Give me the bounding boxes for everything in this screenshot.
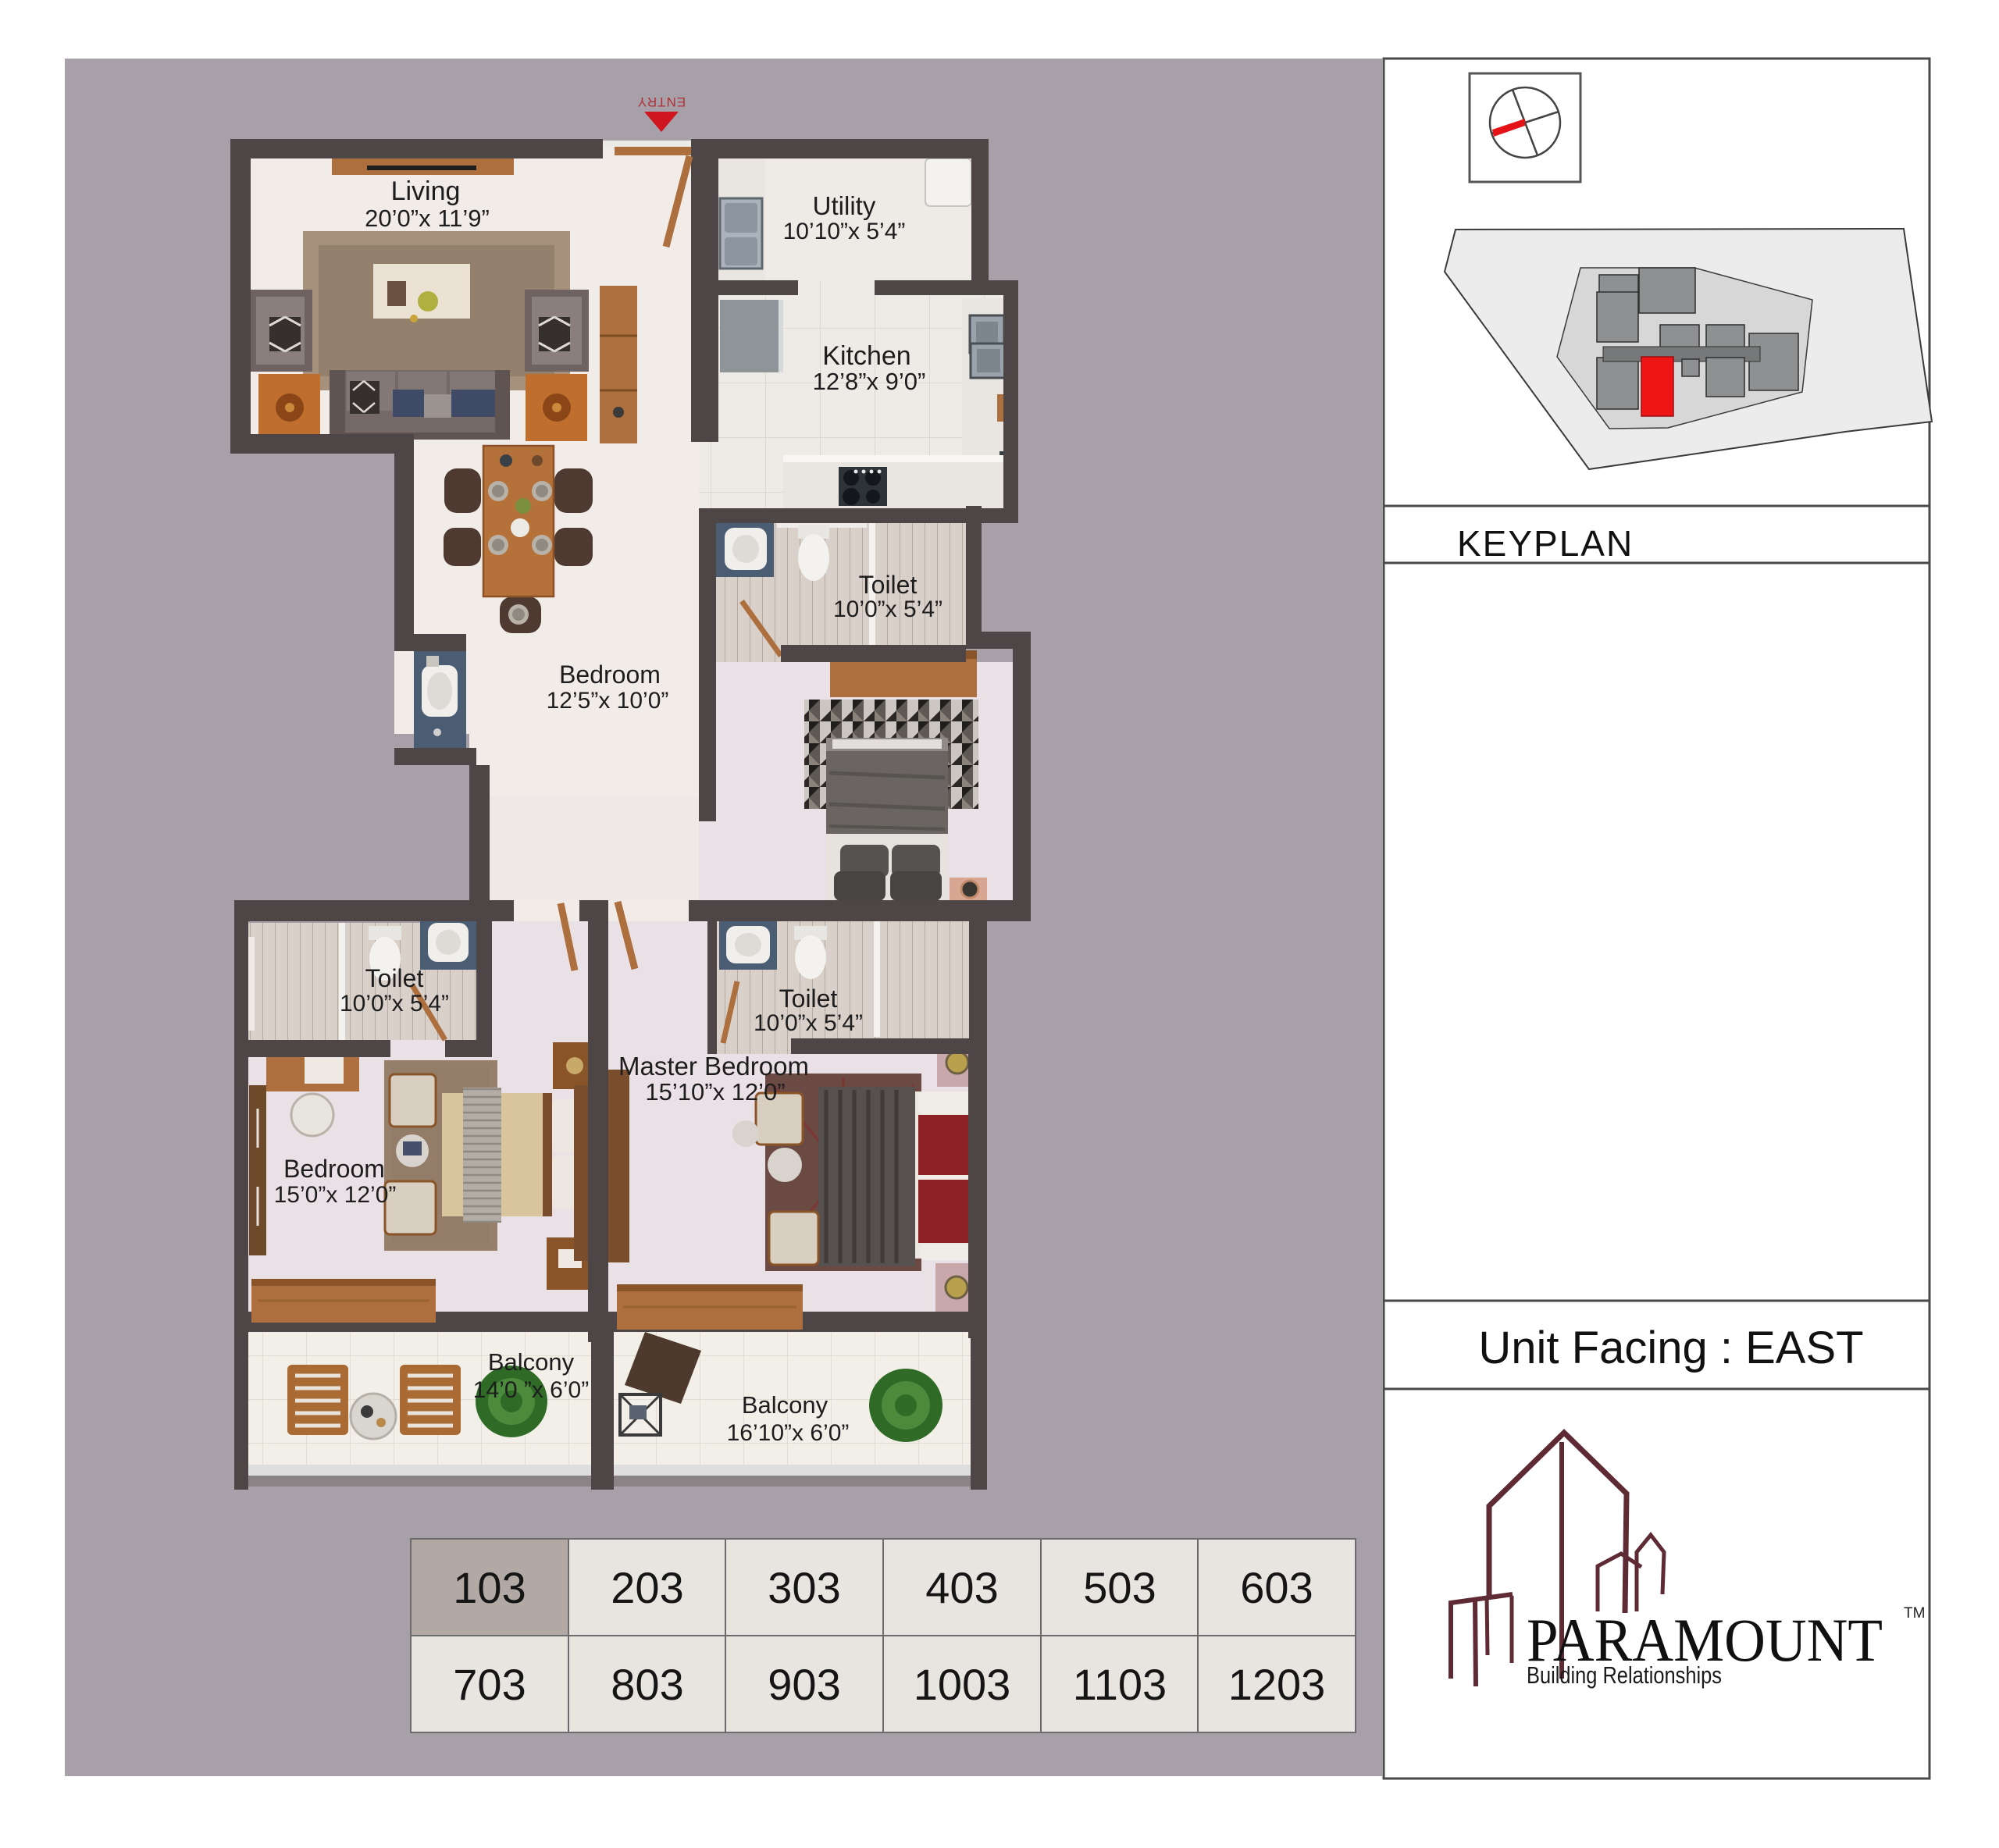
svg-text:Toilet: Toilet xyxy=(859,571,918,599)
svg-text:1003: 1003 xyxy=(914,1660,1011,1709)
svg-text:KEYPLAN: KEYPLAN xyxy=(1457,523,1634,564)
svg-text:15’0”x 12’0”: 15’0”x 12’0” xyxy=(274,1182,397,1208)
svg-text:ENTRY: ENTRY xyxy=(637,94,686,109)
svg-text:1103: 1103 xyxy=(1073,1660,1167,1709)
svg-text:10’0”x 5’4”: 10’0”x 5’4” xyxy=(754,1010,863,1036)
svg-text:703: 703 xyxy=(453,1660,526,1709)
svg-text:10’0”x 5’4”: 10’0”x 5’4” xyxy=(833,596,942,622)
svg-text:16’10”x 6’0”: 16’10”x 6’0” xyxy=(727,1420,850,1446)
svg-text:Unit Facing : EAST: Unit Facing : EAST xyxy=(1478,1323,1863,1373)
svg-text:Toilet: Toilet xyxy=(365,964,424,992)
svg-text:12’8”x 9’0”: 12’8”x 9’0” xyxy=(813,368,926,395)
svg-text:10’10”x 5’4”: 10’10”x 5’4” xyxy=(783,219,906,244)
svg-text:603: 603 xyxy=(1240,1563,1313,1612)
svg-text:303: 303 xyxy=(768,1563,840,1612)
svg-text:Bedroom: Bedroom xyxy=(283,1155,385,1183)
svg-text:Balcony: Balcony xyxy=(742,1391,828,1419)
svg-text:Building Relationships: Building Relationships xyxy=(1527,1661,1722,1689)
svg-text:Kitchen: Kitchen xyxy=(822,341,910,371)
svg-text:12’5”x 10’0”: 12’5”x 10’0” xyxy=(547,688,669,714)
svg-text:20’0”x 11’9”: 20’0”x 11’9” xyxy=(365,205,490,232)
svg-text:Living: Living xyxy=(391,176,461,206)
svg-text:503: 503 xyxy=(1083,1563,1156,1612)
svg-text:Bedroom: Bedroom xyxy=(559,661,661,689)
svg-text:Balcony: Balcony xyxy=(488,1348,575,1376)
svg-text:903: 903 xyxy=(768,1660,840,1709)
svg-text:Toilet: Toilet xyxy=(779,985,838,1013)
svg-text:15’10”x 12’0”: 15’10”x 12’0” xyxy=(645,1078,785,1106)
svg-text:14’0 ”x 6’0”: 14’0 ”x 6’0” xyxy=(473,1377,589,1403)
svg-text:403: 403 xyxy=(925,1563,998,1612)
svg-text:10’0”x 5’4”: 10’0”x 5’4” xyxy=(340,991,449,1017)
svg-text:Utility: Utility xyxy=(813,191,876,220)
svg-text:103: 103 xyxy=(453,1563,526,1612)
svg-text:Master Bedroom: Master Bedroom xyxy=(618,1052,809,1081)
svg-text:TM: TM xyxy=(1904,1605,1925,1622)
svg-text:203: 203 xyxy=(611,1563,683,1612)
svg-text:803: 803 xyxy=(611,1660,683,1709)
svg-text:1203: 1203 xyxy=(1228,1660,1326,1709)
